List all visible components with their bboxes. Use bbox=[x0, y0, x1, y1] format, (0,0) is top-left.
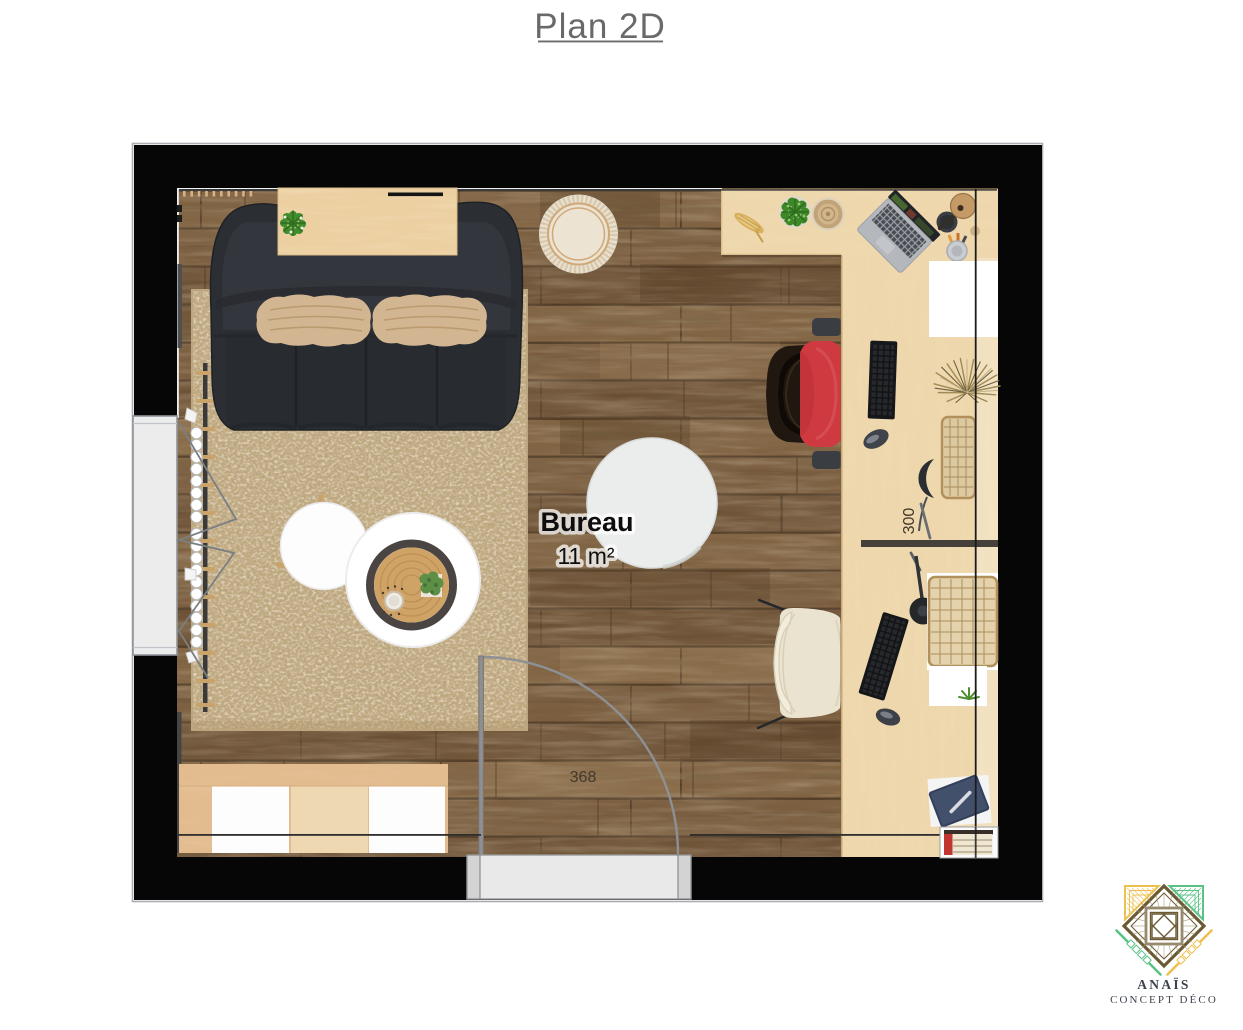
svg-text:11 m²: 11 m² bbox=[557, 543, 614, 569]
svg-text:300: 300 bbox=[901, 508, 918, 535]
svg-text:Bureau: Bureau bbox=[540, 507, 633, 537]
svg-text:ANAÏS: ANAÏS bbox=[1137, 977, 1191, 992]
svg-text:368: 368 bbox=[570, 769, 597, 786]
svg-text:CONCEPT DÉCO: CONCEPT DÉCO bbox=[1110, 994, 1218, 1006]
svg-text:Plan 2D: Plan 2D bbox=[534, 7, 666, 46]
